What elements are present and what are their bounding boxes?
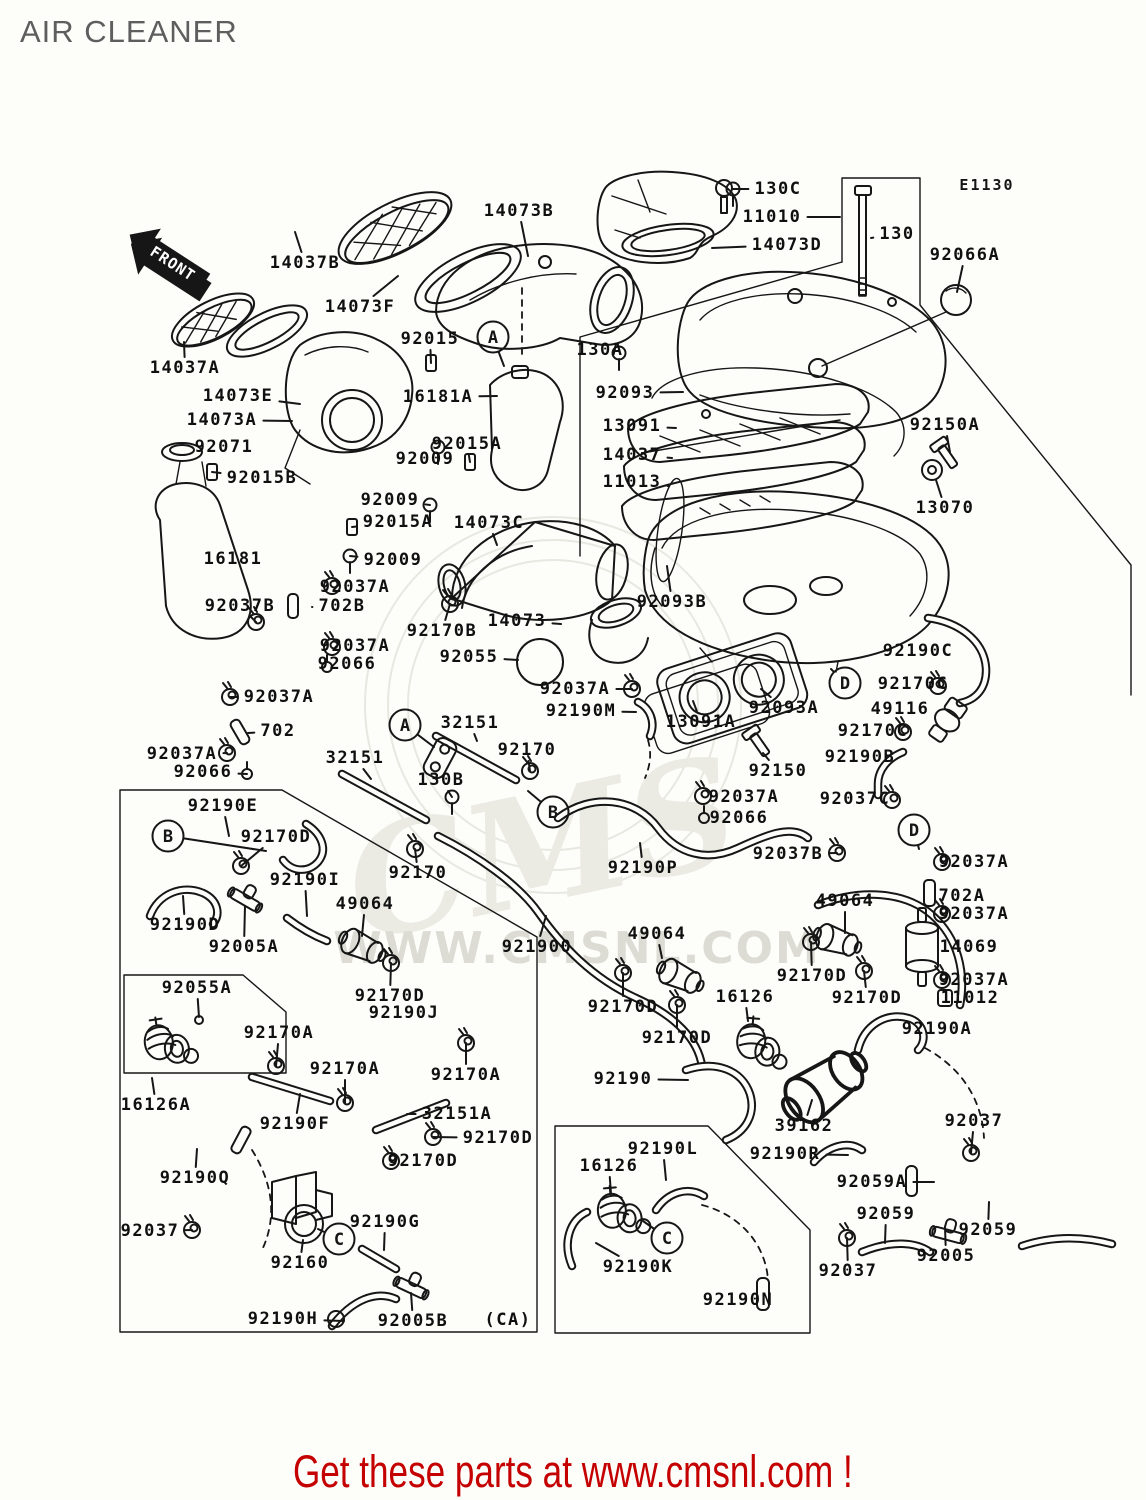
svg-text:A: A — [488, 328, 498, 348]
part-label-92170d[interactable]: 92170D — [642, 1028, 712, 1048]
part-label-92066a[interactable]: 92066A — [930, 245, 1000, 265]
bolt-130 — [855, 186, 871, 296]
part-label-92066[interactable]: 92066 — [318, 654, 377, 674]
footer-banner-text[interactable]: Get these parts at www.cmsnl.com ! — [293, 1446, 853, 1498]
part-label-92190q[interactable]: 92190Q — [160, 1168, 230, 1188]
part-label-92170d[interactable]: 92170D — [777, 966, 847, 986]
part-label-49064[interactable]: 49064 — [628, 924, 687, 944]
part-label-92170c[interactable]: 92170C — [838, 721, 908, 741]
part-label-92170a[interactable]: 92170A — [310, 1059, 380, 1079]
footer-banner[interactable]: Get these parts at www.cmsnl.com ! — [0, 1446, 1146, 1498]
air-filter-mesh-lower — [164, 283, 261, 358]
intake-duct-14073a — [285, 332, 412, 484]
part-label-92190g[interactable]: 92190G — [350, 1212, 420, 1232]
part-label-92190m[interactable]: 92190M — [546, 701, 616, 721]
part-label-92170d[interactable]: 92170D — [241, 827, 311, 847]
part-label-92190n[interactable]: 92190N — [703, 1290, 773, 1310]
part-label-11012[interactable]: 11012 — [941, 988, 1000, 1008]
part-label-92170d[interactable]: 92170D — [463, 1128, 533, 1148]
part-label-39162[interactable]: 39162 — [775, 1116, 834, 1136]
part-label-16181a[interactable]: 16181A — [403, 387, 473, 407]
part-label-92037a[interactable]: 92037A — [320, 577, 390, 597]
part-label-14073d[interactable]: 14073D — [752, 235, 822, 255]
part-label-14037a[interactable]: 14037A — [150, 358, 220, 378]
part-label-16126[interactable]: 16126 — [580, 1156, 639, 1176]
part-label-130b[interactable]: 130B — [418, 770, 465, 790]
part-label-92015[interactable]: 92015 — [401, 329, 460, 349]
watermark-url-text: WWW.CMSNL.COM — [333, 923, 821, 974]
ref-marker-c: C — [643, 1221, 683, 1254]
part-label-92190c[interactable]: 92190C — [883, 641, 953, 661]
part-label-92190r[interactable]: 92190R — [750, 1144, 820, 1164]
part-label-702b[interactable]: 702B — [319, 596, 366, 616]
part-label-14073[interactable]: 14073 — [488, 611, 547, 631]
part-label-92093b[interactable]: 92093B — [637, 592, 707, 612]
part-label-16126a[interactable]: 16126A — [121, 1095, 191, 1115]
part-label-92037a[interactable]: 92037A — [939, 904, 1009, 924]
part-label-92190d[interactable]: 92190D — [150, 915, 220, 935]
part-label-14073a[interactable]: 14073A — [187, 410, 257, 430]
part-label-32151a[interactable]: 32151A — [422, 1104, 492, 1124]
front-direction-arrow: FRONT — [114, 216, 221, 311]
part-label-92037[interactable]: 92037 — [121, 1221, 180, 1241]
part-label-92015a[interactable]: 92015A — [363, 512, 433, 532]
part-label-92066[interactable]: 92066 — [174, 762, 233, 782]
part-label-14073b[interactable]: 14073B — [484, 201, 554, 221]
air-filter-mesh-upper — [328, 178, 461, 279]
part-label-92037a[interactable]: 92037A — [147, 744, 217, 764]
part-label-92055a[interactable]: 92055A — [162, 978, 232, 998]
part-label-13091[interactable]: 13091 — [603, 416, 662, 436]
part-label-92009[interactable]: 92009 — [396, 449, 455, 469]
part-label-92037[interactable]: 92037 — [819, 1261, 878, 1281]
ref-marker-d: D — [899, 815, 930, 850]
part-label-92160[interactable]: 92160 — [271, 1253, 330, 1273]
part-label-92150[interactable]: 92150 — [749, 761, 808, 781]
part-label-702[interactable]: 702 — [260, 721, 295, 741]
part-label-92190p[interactable]: 92190P — [608, 858, 678, 878]
part-label-92037[interactable]: 92037 — [945, 1111, 1004, 1131]
part-label-14069[interactable]: 14069 — [940, 937, 999, 957]
part-label-92150a[interactable]: 92150A — [910, 415, 980, 435]
part-label-92037b[interactable]: 92037B — [205, 596, 275, 616]
tank-16181a — [490, 366, 563, 490]
part-label-92190j[interactable]: 92190J — [369, 1003, 439, 1023]
part-label-92190h[interactable]: 92190H — [248, 1309, 318, 1329]
part-label-92071[interactable]: 92071 — [195, 437, 254, 457]
part-label-92037a[interactable]: 92037A — [320, 636, 390, 656]
svg-text:C: C — [334, 1230, 344, 1250]
part-label-92005[interactable]: 92005 — [917, 1246, 976, 1266]
part-label-92190a[interactable]: 92190A — [902, 1019, 972, 1039]
ref-marker-a: A — [478, 322, 509, 367]
part-label-13070[interactable]: 13070 — [916, 498, 975, 518]
part-label-14037[interactable]: 14037 — [603, 445, 662, 465]
part-label-92055[interactable]: 92055 — [440, 647, 499, 667]
part-label-92093[interactable]: 92093 — [596, 383, 655, 403]
airbox-upper-case — [678, 272, 971, 428]
part-label-92009[interactable]: 92009 — [361, 490, 420, 510]
part-label-130c[interactable]: 130C — [755, 179, 802, 199]
svg-text:D: D — [909, 821, 919, 841]
part-label-92059[interactable]: 92059 — [857, 1204, 916, 1224]
part-label-92170d[interactable]: 92170D — [832, 988, 902, 1008]
part-label-14037b[interactable]: 14037B — [270, 253, 340, 273]
part-label-92170[interactable]: 92170 — [498, 740, 557, 760]
part-label-92170d[interactable]: 92170D — [388, 1151, 458, 1171]
part-label-49064[interactable]: 49064 — [816, 891, 875, 911]
part-label-92037a[interactable]: 92037A — [939, 970, 1009, 990]
part-label-11010[interactable]: 11010 — [743, 207, 802, 227]
part-label-92066[interactable]: 92066 — [710, 808, 769, 828]
part-label-14073c[interactable]: 14073C — [454, 513, 524, 533]
part-label-92059[interactable]: 92059 — [959, 1220, 1018, 1240]
part-label-92059a[interactable]: 92059A — [837, 1172, 907, 1192]
parts-diagram-page: AIR CLEANER CMS WWW.CMSNL.COM — [0, 0, 1146, 1500]
part-label-49064[interactable]: 49064 — [336, 894, 395, 914]
diagram-code: E1130 — [959, 176, 1014, 194]
part-label-16181[interactable]: 16181 — [204, 549, 263, 569]
part-label-92037a[interactable]: 92037A — [939, 852, 1009, 872]
svg-text:B: B — [548, 803, 558, 823]
part-label-921900[interactable]: 921900 — [502, 937, 572, 957]
part-label-92170[interactable]: 92170 — [389, 863, 448, 883]
part-label-92190f[interactable]: 92190F — [260, 1114, 330, 1134]
part-label-92190k[interactable]: 92190K — [603, 1257, 673, 1277]
part-label-92009[interactable]: 92009 — [364, 550, 423, 570]
svg-text:B: B — [163, 827, 173, 847]
part-label-92190e[interactable]: 92190E — [188, 796, 258, 816]
part-label-92190b[interactable]: 92190B — [825, 747, 895, 767]
part-label-92170a[interactable]: 92170A — [244, 1023, 314, 1043]
part-label-49116[interactable]: 49116 — [871, 699, 930, 719]
part-label-32151[interactable]: 32151 — [441, 713, 500, 733]
part-label-92170b[interactable]: 92170B — [407, 621, 477, 641]
part-label-92170a[interactable]: 92170A — [431, 1065, 501, 1085]
part-label-702a[interactable]: 702A — [939, 886, 986, 906]
part-label-92005a[interactable]: 92005A — [209, 937, 279, 957]
part-label-32151[interactable]: 32151 — [326, 748, 385, 768]
part-label-92037a[interactable]: 92037A — [709, 787, 779, 807]
svg-text:C: C — [662, 1229, 672, 1249]
ref-marker-d: D — [830, 668, 861, 699]
watermark-emblem: CMS WWW.CMSNL.COM — [331, 517, 820, 976]
part-label-92190[interactable]: 92190 — [594, 1069, 653, 1089]
part-label-92170d[interactable]: 92170D — [588, 997, 658, 1017]
part-label-14073e[interactable]: 14073E — [203, 386, 273, 406]
elbow-14073 — [517, 593, 648, 685]
air-filter-ring-upper — [405, 230, 530, 325]
part-label-16126[interactable]: 16126 — [716, 987, 775, 1007]
part-label-92190l[interactable]: 92190L — [628, 1139, 698, 1159]
part-label-92190i[interactable]: 92190I — [270, 870, 340, 890]
part-label-130a[interactable]: 130A — [577, 340, 624, 360]
svg-text:A: A — [400, 716, 410, 736]
part-label-92005b[interactable]: 92005B — [378, 1311, 448, 1331]
part-label-ca[interactable]: (CA) — [485, 1310, 532, 1330]
part-label-92093a[interactable]: 92093A — [749, 698, 819, 718]
part-label-92037c[interactable]: 92037C — [820, 789, 890, 809]
part-label-92170c[interactable]: 92170C — [878, 674, 948, 694]
part-label-92037a[interactable]: 92037A — [244, 687, 314, 707]
svg-text:D: D — [840, 674, 850, 694]
part-label-92015b[interactable]: 92015B — [227, 468, 297, 488]
part-label-130[interactable]: 130 — [879, 224, 914, 244]
part-label-13091a[interactable]: 13091A — [666, 712, 736, 732]
part-label-11013[interactable]: 11013 — [603, 472, 662, 492]
part-label-92037b[interactable]: 92037B — [753, 844, 823, 864]
part-label-14073f[interactable]: 14073F — [325, 297, 395, 317]
part-label-92037a[interactable]: 92037A — [540, 679, 610, 699]
